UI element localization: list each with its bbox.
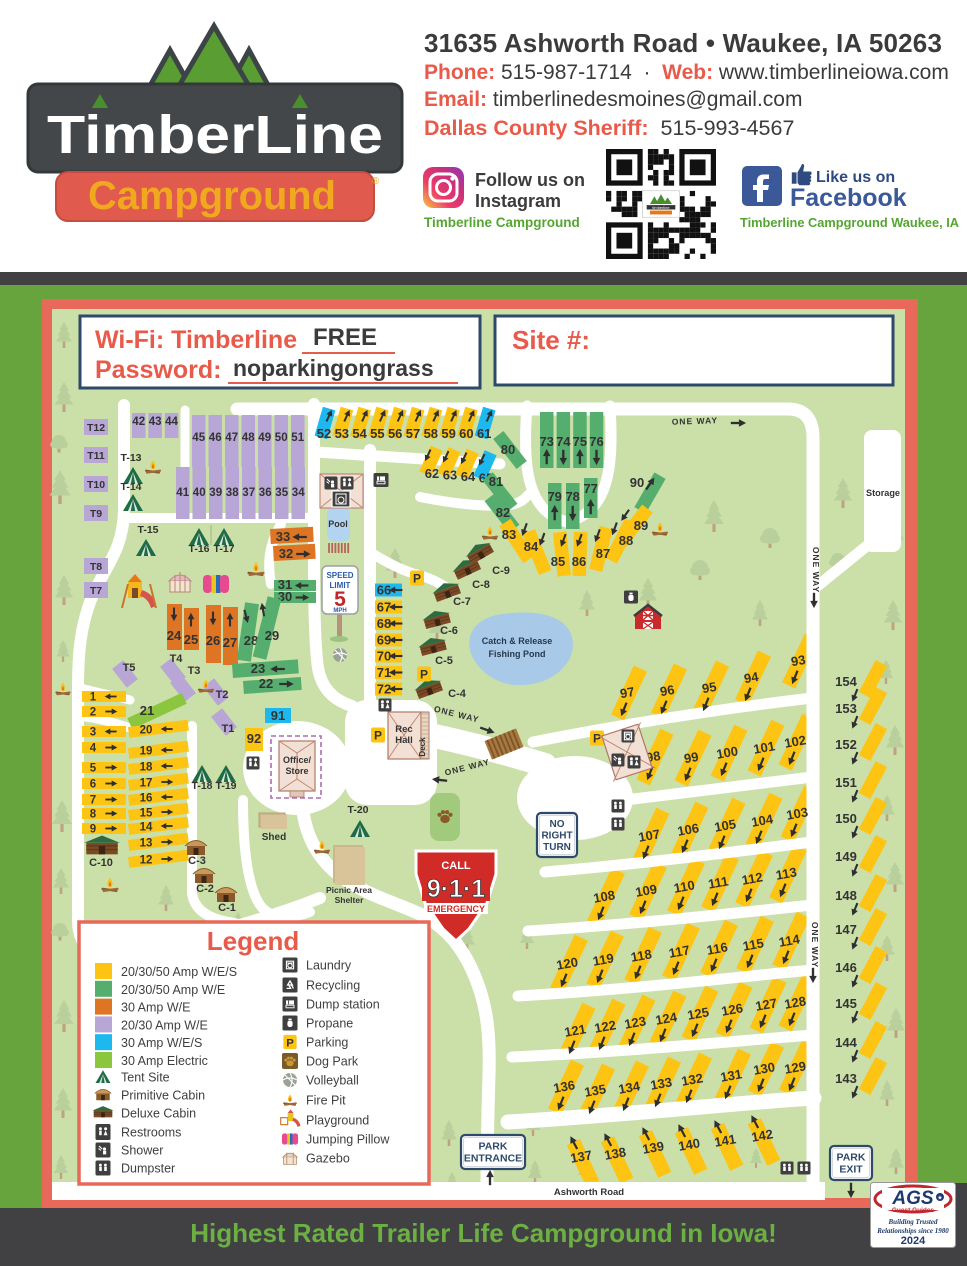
- svg-text:T8: T8: [90, 561, 102, 573]
- svg-text:36: 36: [259, 487, 272, 499]
- svg-text:CALL: CALL: [441, 860, 471, 872]
- svg-text:Shower: Shower: [121, 1144, 163, 1158]
- svg-text:56: 56: [388, 426, 402, 441]
- svg-text:97: 97: [619, 684, 636, 701]
- svg-text:ONE WAY: ONE WAY: [810, 922, 820, 968]
- svg-text:76: 76: [589, 434, 603, 449]
- svg-text:Store: Store: [285, 766, 308, 776]
- svg-text:C-7: C-7: [453, 596, 471, 608]
- svg-text:Jumping Pillow: Jumping Pillow: [306, 1133, 390, 1147]
- svg-text:39: 39: [209, 487, 222, 499]
- svg-text:C-2: C-2: [196, 883, 214, 895]
- svg-text:42: 42: [132, 416, 145, 428]
- svg-text:87: 87: [596, 546, 610, 561]
- svg-text:T2: T2: [216, 689, 229, 701]
- svg-text:12: 12: [140, 855, 153, 867]
- svg-text:14: 14: [140, 822, 153, 834]
- svg-text:C-4: C-4: [448, 688, 467, 700]
- svg-text:Relationships since 1980: Relationships since 1980: [876, 1227, 949, 1235]
- svg-text:Dumpster: Dumpster: [121, 1162, 175, 1176]
- svg-text:47: 47: [225, 432, 238, 444]
- svg-text:T4: T4: [170, 653, 184, 665]
- svg-text:C-3: C-3: [188, 855, 206, 867]
- svg-text:Pool: Pool: [328, 519, 348, 529]
- svg-text:Building Trusted: Building Trusted: [888, 1218, 938, 1226]
- svg-text:NO: NO: [550, 819, 565, 830]
- svg-text:63: 63: [443, 468, 457, 483]
- svg-text:Restrooms: Restrooms: [121, 1126, 181, 1140]
- svg-text:PARK: PARK: [479, 1141, 508, 1153]
- svg-text:Deck: Deck: [418, 737, 427, 757]
- svg-text:T11: T11: [87, 450, 105, 462]
- svg-text:15: 15: [140, 808, 153, 820]
- svg-text:Storage: Storage: [866, 488, 900, 498]
- svg-text:96: 96: [659, 682, 676, 699]
- svg-text:T1: T1: [222, 723, 235, 735]
- svg-text:51: 51: [291, 432, 304, 444]
- svg-text:Propane: Propane: [306, 1017, 353, 1031]
- svg-text:99: 99: [683, 749, 700, 766]
- svg-text:20: 20: [140, 725, 153, 737]
- svg-text:Rec: Rec: [395, 724, 412, 735]
- svg-text:91: 91: [271, 708, 285, 723]
- svg-text:Office/: Office/: [283, 755, 312, 765]
- svg-text:152: 152: [835, 737, 857, 752]
- svg-text:145: 145: [835, 996, 857, 1011]
- svg-text:149: 149: [835, 849, 857, 864]
- svg-text:C-5: C-5: [435, 655, 453, 667]
- svg-text:Gazebo: Gazebo: [306, 1152, 350, 1166]
- svg-text:89: 89: [634, 518, 648, 533]
- svg-text:noparkingongrass: noparkingongrass: [233, 355, 434, 381]
- svg-text:6: 6: [90, 779, 96, 791]
- svg-text:20/30 Amp W/E: 20/30 Amp W/E: [121, 1018, 208, 1032]
- svg-text:92: 92: [247, 731, 261, 746]
- svg-text:2: 2: [90, 707, 96, 719]
- svg-text:Wi-Fi: Timberline: Wi-Fi: Timberline: [95, 326, 297, 354]
- svg-text:40: 40: [193, 487, 206, 499]
- svg-text:Password:: Password:: [95, 356, 221, 384]
- svg-text:30 Amp Electric: 30 Amp Electric: [121, 1054, 208, 1068]
- svg-text:Fishing Pond: Fishing Pond: [489, 649, 546, 659]
- svg-text:60: 60: [459, 426, 473, 441]
- svg-text:46: 46: [209, 432, 222, 444]
- svg-text:22: 22: [259, 676, 273, 691]
- svg-text:32: 32: [279, 546, 293, 561]
- svg-text:Ashworth Road: Ashworth Road: [554, 1187, 624, 1198]
- svg-text:26: 26: [206, 633, 220, 648]
- svg-text:T-19: T-19: [215, 780, 236, 792]
- svg-text:Tent Site: Tent Site: [121, 1071, 170, 1085]
- svg-text:151: 151: [835, 775, 857, 790]
- svg-text:Primitive Cabin: Primitive Cabin: [121, 1089, 205, 1103]
- svg-text:FREE: FREE: [313, 324, 377, 351]
- svg-text:57: 57: [406, 426, 420, 441]
- svg-text:25: 25: [184, 632, 198, 647]
- svg-text:82: 82: [496, 505, 510, 520]
- svg-text:AGS: AGS: [891, 1188, 934, 1209]
- svg-text:9: 9: [90, 824, 96, 836]
- svg-text:53: 53: [335, 426, 349, 441]
- svg-text:74: 74: [556, 434, 571, 449]
- svg-text:93: 93: [790, 652, 807, 669]
- svg-text:Facebook: Facebook: [790, 184, 907, 212]
- svg-text:2024: 2024: [901, 1235, 926, 1247]
- svg-text:79: 79: [547, 489, 561, 504]
- svg-text:Parking: Parking: [306, 1036, 348, 1050]
- svg-text:43: 43: [149, 416, 162, 428]
- svg-text:153: 153: [835, 701, 857, 716]
- svg-text:44: 44: [165, 416, 178, 428]
- svg-text:Dog Park: Dog Park: [306, 1055, 359, 1069]
- svg-text:85: 85: [551, 554, 565, 569]
- svg-text:Fire Pit: Fire Pit: [306, 1094, 346, 1108]
- svg-text:SPEED: SPEED: [326, 571, 353, 580]
- svg-text:®: ®: [372, 176, 380, 187]
- svg-text:7: 7: [90, 795, 96, 807]
- svg-text:P: P: [593, 732, 601, 746]
- svg-text:★: ★: [937, 1195, 942, 1202]
- svg-text:20/30/50 Amp W/E: 20/30/50 Amp W/E: [121, 983, 225, 997]
- svg-text:T-15: T-15: [137, 524, 158, 536]
- svg-text:5: 5: [90, 763, 97, 775]
- svg-text:ONE WAY: ONE WAY: [672, 415, 719, 427]
- svg-text:84: 84: [524, 539, 539, 554]
- svg-text:78: 78: [565, 489, 579, 504]
- svg-text:P: P: [374, 729, 382, 743]
- svg-text:8: 8: [90, 809, 97, 821]
- svg-text:18: 18: [140, 762, 153, 774]
- svg-text:75: 75: [573, 434, 587, 449]
- svg-text:35: 35: [275, 487, 288, 499]
- svg-text:17: 17: [140, 778, 153, 790]
- svg-text:TimberLine: TimberLine: [47, 105, 383, 165]
- svg-text:21: 21: [140, 703, 154, 718]
- svg-text:83: 83: [502, 527, 516, 542]
- svg-text:13: 13: [140, 838, 153, 850]
- svg-text:Hall: Hall: [395, 735, 412, 746]
- svg-text:Deluxe Cabin: Deluxe Cabin: [121, 1107, 196, 1121]
- svg-text:Site #:: Site #:: [512, 325, 590, 355]
- svg-text:Recycling: Recycling: [306, 979, 360, 993]
- svg-text:ENTRANCE: ENTRANCE: [464, 1153, 522, 1165]
- svg-text:C-10: C-10: [89, 857, 113, 869]
- svg-text:EMERGENCY: EMERGENCY: [427, 904, 485, 914]
- svg-text:54: 54: [352, 426, 367, 441]
- svg-text:48: 48: [242, 432, 255, 444]
- svg-text:77: 77: [583, 481, 597, 496]
- svg-text:Shed: Shed: [262, 832, 286, 843]
- svg-text:Laundry: Laundry: [306, 959, 352, 973]
- svg-text:T-20: T-20: [347, 804, 368, 816]
- svg-text:61: 61: [477, 426, 491, 441]
- svg-text:Guest Guides: Guest Guides: [892, 1207, 935, 1214]
- svg-text:29: 29: [265, 628, 279, 643]
- svg-text:154: 154: [835, 674, 857, 689]
- svg-text:45: 45: [192, 432, 205, 444]
- svg-text:23: 23: [251, 661, 265, 676]
- svg-text:16: 16: [140, 793, 153, 805]
- svg-text:Catch & Release: Catch & Release: [482, 636, 553, 646]
- svg-text:C-6: C-6: [440, 625, 458, 637]
- svg-text:73: 73: [539, 434, 553, 449]
- svg-text:P: P: [413, 572, 421, 586]
- svg-text:Playground: Playground: [306, 1114, 369, 1128]
- svg-text:30 Amp W/E: 30 Amp W/E: [121, 1001, 190, 1015]
- svg-text:Dump station: Dump station: [306, 998, 380, 1012]
- svg-text:Campground: Campground: [88, 174, 336, 218]
- svg-text:C-1: C-1: [218, 902, 236, 914]
- svg-text:62: 62: [425, 466, 439, 481]
- svg-text:150: 150: [835, 811, 857, 826]
- svg-text:148: 148: [835, 888, 857, 903]
- svg-text:T9: T9: [90, 508, 102, 520]
- svg-text:timberline: timberline: [652, 205, 670, 210]
- svg-text:90: 90: [630, 475, 644, 490]
- svg-text:MPH: MPH: [333, 608, 346, 614]
- svg-text:81: 81: [489, 474, 503, 489]
- svg-text:TURN: TURN: [543, 842, 571, 853]
- svg-text:T5: T5: [123, 662, 136, 674]
- svg-text:49: 49: [258, 432, 271, 444]
- svg-text:19: 19: [140, 746, 153, 758]
- svg-text:58: 58: [424, 426, 438, 441]
- svg-text:T-17: T-17: [213, 543, 234, 555]
- svg-text:27: 27: [223, 635, 237, 650]
- svg-text:Volleyball: Volleyball: [306, 1074, 359, 1088]
- svg-text:143: 143: [835, 1071, 857, 1086]
- svg-text:30 Amp W/E/S: 30 Amp W/E/S: [121, 1036, 202, 1050]
- svg-text:20/30/50 Amp W/E/S: 20/30/50 Amp W/E/S: [121, 965, 237, 979]
- svg-text:144: 144: [835, 1035, 857, 1050]
- svg-text:T-18: T-18: [191, 780, 212, 792]
- svg-text:52: 52: [317, 426, 331, 441]
- svg-text:C-8: C-8: [472, 579, 490, 591]
- svg-text:T-16: T-16: [188, 543, 209, 555]
- svg-text:88: 88: [619, 533, 633, 548]
- svg-text:34: 34: [292, 487, 305, 499]
- svg-text:T10: T10: [87, 479, 105, 491]
- svg-text:P: P: [286, 1037, 294, 1049]
- svg-text:95: 95: [701, 679, 718, 696]
- svg-text:50: 50: [275, 432, 288, 444]
- svg-text:PARK: PARK: [837, 1152, 866, 1164]
- svg-text:59: 59: [441, 426, 455, 441]
- svg-text:38: 38: [226, 487, 239, 499]
- svg-text:Legend: Legend: [207, 926, 299, 956]
- svg-text:1: 1: [90, 692, 97, 704]
- svg-text:T-14: T-14: [120, 481, 141, 493]
- svg-text:RIGHT: RIGHT: [541, 831, 572, 842]
- svg-text:T7: T7: [90, 585, 102, 597]
- svg-text:37: 37: [242, 487, 255, 499]
- svg-text:86: 86: [572, 554, 586, 569]
- svg-text:146: 146: [835, 960, 857, 975]
- svg-text:9·1·1: 9·1·1: [427, 875, 485, 903]
- svg-text:C-9: C-9: [492, 565, 510, 577]
- svg-text:64: 64: [461, 469, 476, 484]
- svg-text:33: 33: [276, 529, 290, 544]
- svg-text:P: P: [420, 668, 428, 682]
- svg-text:Picnic Area: Picnic Area: [326, 885, 372, 895]
- svg-text:55: 55: [370, 426, 384, 441]
- svg-text:ONE WAY: ONE WAY: [811, 547, 821, 593]
- svg-text:147: 147: [835, 922, 857, 937]
- svg-text:4: 4: [90, 743, 97, 755]
- svg-text:T-13: T-13: [120, 452, 141, 464]
- svg-text:T12: T12: [87, 422, 105, 434]
- svg-text:T3: T3: [188, 665, 201, 677]
- svg-text:EXIT: EXIT: [839, 1164, 863, 1176]
- svg-text:41: 41: [176, 487, 189, 499]
- svg-text:24: 24: [167, 628, 182, 643]
- svg-text:80: 80: [501, 442, 515, 457]
- svg-text:Shelter: Shelter: [335, 895, 365, 905]
- svg-text:3: 3: [90, 727, 96, 739]
